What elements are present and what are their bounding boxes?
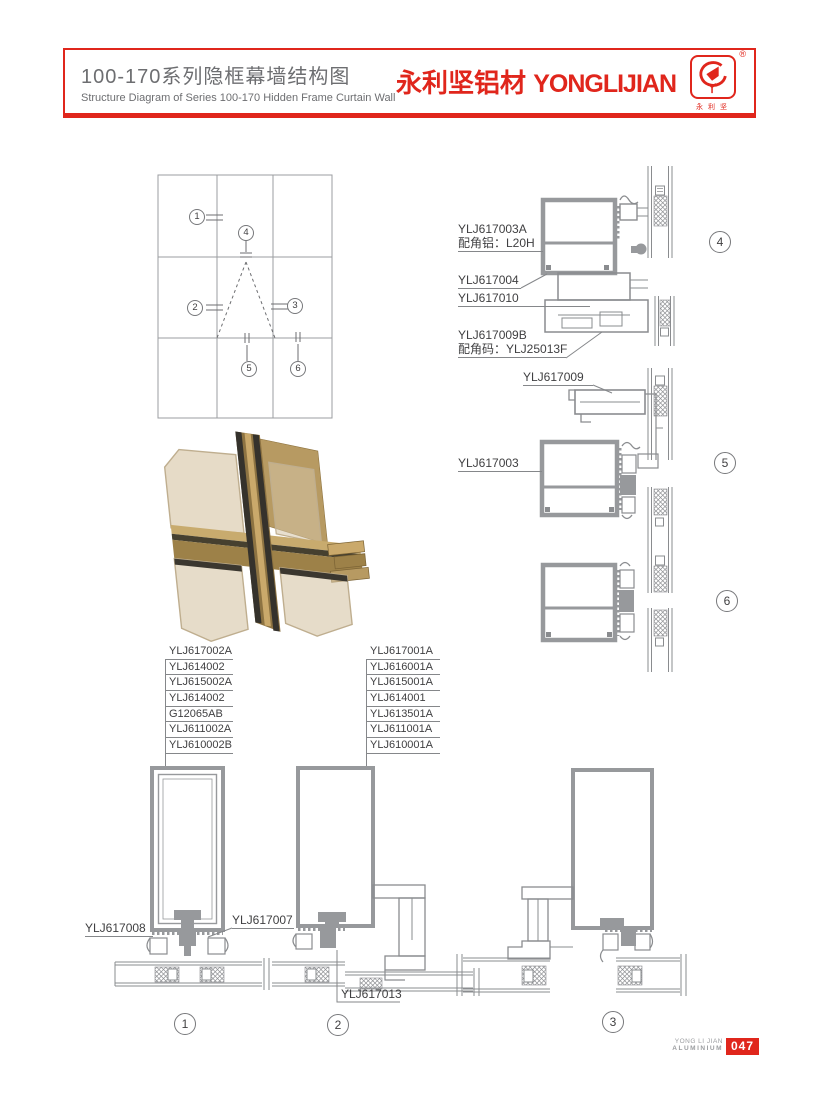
- detail-sections-bottom: [60, 740, 760, 1035]
- page-footer: YONG LI JIAN ALUMINIUM 047: [645, 1038, 759, 1055]
- catalog-page: 100-170系列隐框幕墙结构图 Structure Diagram of Se…: [0, 0, 817, 1101]
- part-item: YLJ613501A: [366, 707, 440, 723]
- part-label-YLJ617008: YLJ617008: [85, 921, 153, 937]
- part-note: 配角码：YLJ25013F: [458, 342, 566, 356]
- part-item: YLJ611001A: [366, 722, 440, 738]
- footer-company: YONG LI JIAN ALUMINIUM: [645, 1038, 723, 1052]
- part-item: YLJ616001A: [366, 660, 440, 676]
- detail-number-4: 4: [709, 231, 731, 253]
- detail-number-5: 5: [714, 452, 736, 474]
- part-item: YLJ617002A: [165, 644, 233, 660]
- footer-company-industry: ALUMINIUM: [645, 1045, 723, 1052]
- part-label-YLJ617010: YLJ617010: [458, 291, 590, 307]
- part-label-YLJ617004: YLJ617004: [458, 273, 521, 289]
- part-item: YLJ617001A: [366, 644, 440, 660]
- brand-logo: ® 永利坚: [688, 51, 746, 113]
- brand-name-cn: 永利坚铝材: [396, 68, 526, 98]
- overview-callout-1: 1: [189, 209, 205, 225]
- part-note: 配角铝：L20H: [458, 236, 543, 250]
- logo-frame: [690, 55, 736, 99]
- parts-list-right: YLJ617001A YLJ616001A YLJ615001A YLJ6140…: [366, 644, 440, 754]
- part-label-YLJ617009B: YLJ617009B 配角码：YLJ25013F: [458, 328, 566, 358]
- overview-callout-2: 2: [187, 300, 203, 316]
- brand-name-en: YONGLIJIAN: [533, 70, 676, 98]
- part-item: G12065AB: [165, 707, 233, 723]
- overview-callout-5: 5: [241, 361, 257, 377]
- part-label-YLJ617007: YLJ617007: [232, 913, 294, 929]
- part-item: YLJ611002A: [165, 722, 233, 738]
- logo-swirl-icon: [694, 58, 732, 96]
- part-label-YLJ617013: YLJ617013: [341, 987, 399, 1002]
- page-header: 100-170系列隐框幕墙结构图 Structure Diagram of Se…: [63, 48, 756, 118]
- overview-schematic: [140, 165, 360, 425]
- detail-number-6: 6: [716, 590, 738, 612]
- assembly-3d-render: [158, 423, 373, 641]
- part-item: YLJ615001A: [366, 675, 440, 691]
- page-title: 100-170系列隐框幕墙结构图: [81, 60, 395, 89]
- footer-company-name: YONG LI JIAN: [645, 1038, 723, 1045]
- logo-caption: 永利坚: [688, 102, 740, 112]
- detail-number-3: 3: [602, 1011, 624, 1033]
- part-number: YLJ617003A: [458, 222, 543, 236]
- page-number-badge: 047: [726, 1038, 759, 1055]
- part-item: YLJ614001: [366, 691, 440, 707]
- overview-callout-4: 4: [238, 225, 254, 241]
- registered-mark: ®: [739, 49, 746, 59]
- part-number: YLJ617009B: [458, 328, 566, 342]
- title-block: 100-170系列隐框幕墙结构图 Structure Diagram of Se…: [81, 60, 395, 104]
- detail-number-2: 2: [327, 1014, 349, 1036]
- brand-wordmark: 永利坚铝材 YONGLIJIAN: [396, 63, 676, 100]
- part-item: YLJ614002: [165, 691, 233, 707]
- part-label-YLJ617009: YLJ617009: [523, 370, 593, 386]
- parts-list-left: YLJ617002A YLJ614002 YLJ615002A YLJ61400…: [165, 644, 233, 754]
- detail-number-1: 1: [174, 1013, 196, 1035]
- part-label-YLJ617003A: YLJ617003A 配角铝：L20H: [458, 222, 543, 252]
- brand-block: 永利坚铝材 YONGLIJIAN ® 永利坚: [396, 51, 746, 113]
- part-item: YLJ614002: [165, 660, 233, 676]
- page-subtitle: Structure Diagram of Series 100-170 Hidd…: [81, 92, 395, 104]
- overview-callout-6: 6: [290, 361, 306, 377]
- overview-callout-3: 3: [287, 298, 303, 314]
- part-label-YLJ617003: YLJ617003: [458, 456, 542, 472]
- part-item: YLJ615002A: [165, 675, 233, 691]
